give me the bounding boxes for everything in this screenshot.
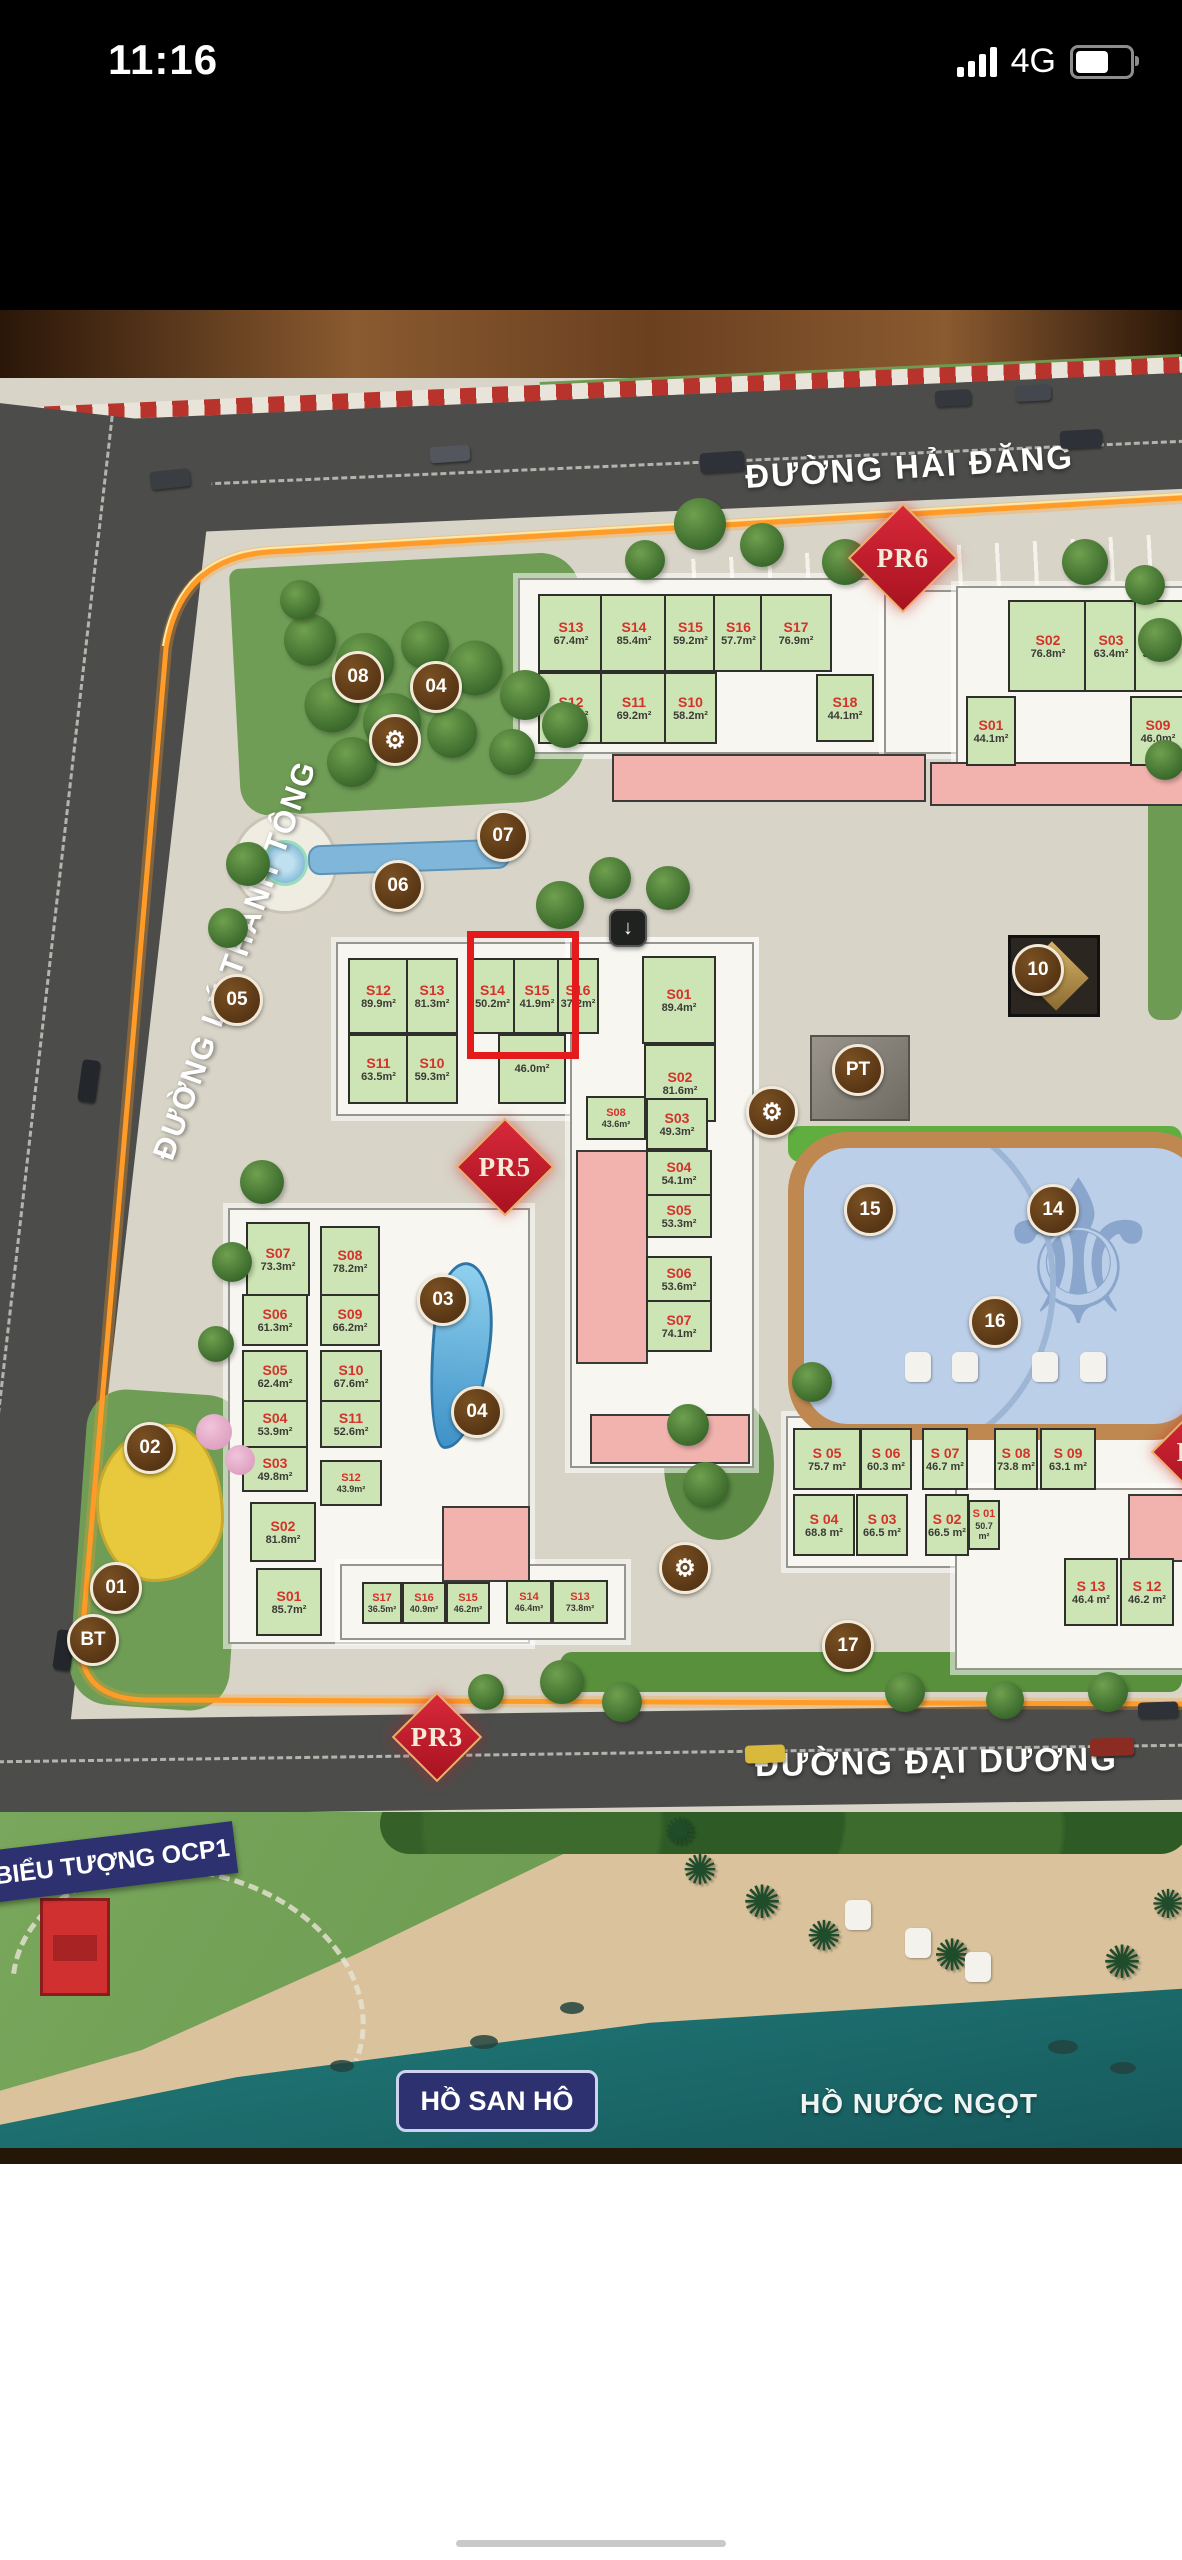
unit-S15: S1559.2m² [664,594,717,672]
lounge-chair [965,1952,991,1982]
tree [1062,539,1108,585]
unit-S16: S1657.7m² [713,594,764,672]
unit-S05: S 0575.7 m² [793,1428,861,1490]
unit-label: S 04 [810,1511,839,1527]
car [429,445,470,464]
unit-S06: S0661.3m² [242,1294,308,1346]
unit-S15: S1546.2m² [446,1582,490,1624]
unit-S12: S1289.9m² [348,958,409,1034]
unit-S14: S1485.4m² [600,594,668,672]
palm-tree: ✺ [1103,1935,1142,1989]
battery-icon [1070,45,1134,79]
amenity-marker-03: 03 [417,1274,469,1326]
unit-area: 62.4m² [258,1378,293,1391]
lounge-chair [1080,1352,1106,1382]
unit-label: S06 [263,1306,288,1322]
master-plan-map: ⚜ S1367.4m²S1485.4m²S1559.2m²S1657.7m²S1… [0,0,1182,2165]
unit-S01: S0189.4m² [642,956,716,1044]
unit-area: 52.6m² [334,1426,369,1439]
tree [683,1462,729,1508]
unit-area: 73.8m² [566,1603,595,1613]
unit-label: S07 [266,1245,291,1261]
car [1090,1737,1135,1757]
unit-S03: S 0366.5 m² [856,1494,908,1556]
unit-S04: S0453.9m² [242,1400,308,1448]
unit-label: S14 [519,1591,539,1604]
unit-label: S11 [622,694,646,710]
unit-area: 63.5m² [361,1071,396,1084]
ocp1-red-structure [40,1898,110,1996]
tree [198,1326,234,1362]
unit-area: 46.2 m² [1128,1594,1166,1607]
unit-area: 73.3m² [261,1261,296,1274]
amenity-marker-15: 15 [844,1184,896,1236]
gear-icon: ⚙ [659,1542,711,1594]
unit-label: S13 [559,619,584,635]
unit-label: S05 [263,1362,288,1378]
unit-S13: S1381.3m² [406,958,458,1034]
amenity-marker-04: 04 [451,1386,503,1438]
unit-S07: S0774.1m² [646,1300,712,1352]
palm-tree: ✺ [806,1912,841,1961]
unit-area: 53.9m² [258,1426,293,1439]
unit-area: 67.6m² [334,1378,369,1391]
unit-label: S12 [366,982,391,998]
unit-area: 75.7 m² [808,1461,846,1474]
unit-label: S10 [339,1362,364,1378]
unit-label: S09 [1146,717,1171,733]
unit-area: 59.2m² [673,635,708,648]
unit-area: 61.3m² [258,1322,293,1335]
unit-S09: S 0963.1 m² [1040,1428,1096,1490]
unit-S04: S0454.1m² [646,1150,712,1196]
highlighted-unit-box [467,931,579,1059]
unit-S10: S1067.6m² [320,1350,382,1402]
tree [1088,1672,1128,1712]
unit-S03: S0349.3m² [646,1098,708,1150]
unit-area: 85.7m² [272,1604,307,1617]
tree [740,523,784,567]
unit-area: 44.1m² [828,710,863,723]
tree [212,1242,252,1282]
tree [489,729,535,775]
tree [208,908,248,948]
unit-label: S15 [678,619,703,635]
amenity-marker-10: 10 [1012,944,1064,996]
amenity-marker-04: 04 [410,661,462,713]
main-pool: ⚜ [788,1132,1182,1440]
unit-label: S11 [339,1410,363,1426]
unit-area: 59.3m² [415,1071,450,1084]
blossom-tree [196,1414,232,1450]
tree [500,670,550,720]
unit-label: S15 [458,1592,478,1605]
unit-label: S13 [420,982,445,998]
tree [1138,618,1182,662]
unit-label: S 08 [1002,1445,1031,1461]
unit-S11: S1152.6m² [320,1400,382,1448]
street-label-dai-duong: ĐƯỜNG ĐẠI DƯƠNG [755,1740,1118,1784]
unit-area: 66.2m² [333,1322,368,1335]
unit-S07: S0773.3m² [246,1222,310,1296]
unit-S07: S 0746.7 m² [922,1428,968,1490]
photo-bottom-edge [0,2148,1182,2164]
unit-label: S06 [667,1265,692,1281]
unit-label: S 12 [1133,1578,1162,1594]
status-right-cluster: 4G [957,42,1134,81]
unit-area: 67.4m² [554,635,589,648]
unit-area: 46.4m² [515,1603,544,1613]
amenity-marker-02: 02 [124,1422,176,1474]
unit-S13: S1367.4m² [538,594,604,672]
unit-area: 53.6m² [662,1281,697,1294]
lake-label-nuoc-ngot: HỒ NƯỚC NGỌT [800,2088,1038,2120]
unit-S01: S 0150.7 m² [968,1500,1000,1550]
unit-S06: S0653.6m² [646,1256,712,1302]
unit-label: S16 [414,1592,434,1605]
unit-label: S12 [341,1472,361,1485]
gear-icon: ⚙ [746,1086,798,1138]
rock [470,2035,498,2049]
home-indicator [456,2540,726,2547]
unit-S18: S1844.1m² [816,674,874,742]
building-bottom-right-commercial-block [1128,1494,1182,1562]
unit-S11: S1163.5m² [348,1034,409,1104]
unit-S03: S0363.4m² [1084,600,1138,692]
tree [284,614,336,666]
network-type-label: 4G [1011,42,1056,81]
lounge-chair [845,1900,871,1930]
unit-area: 89.9m² [361,998,396,1011]
entrance-arrow-icon: ↓ [609,909,647,947]
unit-area: 63.4m² [1094,648,1129,661]
tree [674,498,726,550]
unit-label: S07 [667,1312,692,1328]
phone-screenshot: ⚜ S1367.4m²S1485.4m²S1559.2m²S1657.7m²S1… [0,0,1182,2560]
unit-S10: S1058.2m² [664,672,717,744]
unit-S01: S0144.1m² [966,696,1016,766]
unit-S08: S0843.6m² [586,1096,646,1140]
amenity-marker-16: 16 [969,1296,1021,1348]
car [935,389,972,407]
unit-S02: S0281.8m² [250,1502,316,1562]
unit-label: S05 [667,1202,692,1218]
unit-label: S17 [784,619,809,635]
unit-area: 81.8m² [266,1534,301,1547]
amenity-marker-01: 01 [90,1562,142,1614]
car [1138,1701,1179,1718]
tree [885,1672,925,1712]
unit-label: S11 [366,1055,390,1071]
unit-S05: S0562.4m² [242,1350,308,1402]
lounge-chair [952,1352,978,1382]
unit-S04: S 0468.8 m² [793,1494,855,1556]
unit-label: S01 [979,717,1004,733]
unit-S12: S 1246.2 m² [1120,1558,1174,1626]
blossom-tree [225,1445,255,1475]
gear-icon: ⚙ [369,714,421,766]
unit-area: 46.4 m² [1072,1594,1110,1607]
lounge-chair [905,1928,931,1958]
unit-area: 66.5 m² [928,1527,966,1540]
amenity-marker-PT: PT [832,1044,884,1096]
unit-label: S08 [606,1107,626,1120]
unit-area: 66.5 m² [863,1527,901,1540]
unit-area: 78.2m² [333,1263,368,1276]
unit-label: S10 [420,1055,445,1071]
unit-label: S 09 [1054,1445,1083,1461]
unit-area: 46.0m² [515,1063,550,1076]
unit-label: S13 [570,1591,590,1604]
tree [226,842,270,886]
unit-area: 74.1m² [662,1328,697,1341]
amenity-marker-17: 17 [822,1620,874,1672]
unit-label: S02 [1036,632,1061,648]
rock [560,2002,584,2014]
unit-label: S14 [622,619,647,635]
building-bottom-left-commercial-block [442,1506,530,1582]
palm-tree: ✺ [664,1812,696,1855]
unit-label: S 07 [931,1445,960,1461]
beach-treeline [380,1812,1182,1854]
tree [280,580,320,620]
unit-area: 43.6m² [602,1119,631,1129]
unit-area: 50.7 m² [970,1521,998,1542]
unit-label: S01 [667,986,692,1002]
beach-zone: BIỂU TƯỢNG OCP1 HỒ SAN HÔ HỒ NƯỚC NGỌT ✺… [0,1812,1182,2152]
unit-area: 43.9m² [337,1484,366,1494]
lounge-chair [905,1352,931,1382]
car [699,450,744,473]
unit-S12: S1243.9m² [320,1460,382,1506]
unit-label: S16 [726,619,751,635]
amenity-marker-07: 07 [477,810,529,862]
palm-tree: ✺ [743,1875,782,1929]
tree [468,1674,504,1710]
rock [330,2060,354,2072]
unit-area: 76.8m² [1031,648,1066,661]
unit-label: S18 [833,694,858,710]
tree [536,881,584,929]
unit-S10: S1059.3m² [406,1034,458,1104]
building-top-slab [884,590,964,754]
unit-S11: S1169.2m² [600,672,668,744]
unit-label: S10 [678,694,703,710]
amenity-marker-14: 14 [1027,1184,1079,1236]
unit-label: S 13 [1077,1578,1106,1594]
unit-label: S08 [338,1247,363,1263]
tree [240,1160,284,1204]
unit-area: 69.2m² [617,710,652,723]
lounge-chair [1032,1352,1058,1382]
amenity-marker-05: 05 [211,974,263,1026]
palm-tree: ✺ [1151,1882,1182,1928]
unit-area: 54.1m² [662,1175,697,1188]
unit-area: 81.3m² [415,998,450,1011]
unit-S01: S0185.7m² [256,1568,322,1636]
bottom-white-area [0,2164,1182,2560]
unit-area: 36.5m² [368,1604,397,1614]
amenity-marker-BT: BT [67,1614,119,1666]
lake-label-san-ho: HỒ SAN HÔ [396,2070,598,2132]
unit-area: 76.9m² [779,635,814,648]
unit-S08: S 0873.8 m² [994,1428,1038,1490]
unit-S16: S1640.9m² [402,1582,446,1624]
unit-S14: S1446.4m² [506,1580,552,1624]
unit-S06: S 0660.3 m² [860,1428,912,1490]
unit-area: 85.4m² [617,635,652,648]
car [1015,384,1052,402]
tree [427,708,477,758]
unit-area: 46.2m² [454,1604,483,1614]
tree [542,702,588,748]
unit-area: 60.3 m² [867,1461,905,1474]
pool-arc-pattern [788,1132,1056,1440]
unit-S08: S0878.2m² [320,1226,380,1296]
unit-area: 46.7 m² [926,1461,964,1474]
tree [602,1682,642,1722]
unit-S13: S 1346.4 m² [1064,1558,1118,1626]
tree [625,540,665,580]
unit-S13: S1373.8m² [552,1580,608,1624]
unit-label: S04 [667,1159,692,1175]
unit-area: 40.9m² [410,1604,439,1614]
building-middle-commercial-block [576,1150,648,1364]
unit-S02: S 0266.5 m² [925,1494,969,1556]
rock [1048,2040,1078,2054]
unit-S17: S1736.5m² [362,1582,402,1624]
rock [1110,2062,1136,2074]
tree [1145,740,1182,780]
unit-area: 49.8m² [258,1471,293,1484]
unit-area: 53.3m² [662,1218,697,1231]
tree [589,857,631,899]
unit-label: S 02 [933,1511,962,1527]
tree [646,866,690,910]
unit-area: 81.6m² [663,1085,698,1098]
unit-area: 58.2m² [673,710,708,723]
unit-label: S03 [1099,632,1124,648]
unit-area: 73.8 m² [997,1461,1035,1474]
tree [986,1681,1024,1719]
unit-area: 49.3m² [660,1126,695,1139]
unit-label: S 06 [872,1445,901,1461]
unit-area: 44.1m² [974,733,1009,746]
status-time: 11:16 [108,36,218,84]
amenity-marker-08: 08 [332,651,384,703]
car [745,1744,786,1763]
unit-S02: S0276.8m² [1008,600,1088,692]
unit-label: S 03 [868,1511,897,1527]
amenity-marker-06: 06 [372,860,424,912]
status-bar: 11:16 4G [0,0,1182,310]
tree [540,1660,584,1704]
unit-label: S02 [271,1518,296,1534]
signal-bars-icon [957,47,997,77]
unit-area: 63.1 m² [1049,1461,1087,1474]
tree [667,1404,709,1446]
building-top-commercial-block [930,762,1182,806]
unit-area: 89.4m² [662,1002,697,1015]
building-top-commercial-block [612,754,926,802]
unit-area: 57.7m² [721,635,756,648]
unit-label: S09 [338,1306,363,1322]
unit-label: S04 [263,1410,288,1426]
tree [792,1362,832,1402]
unit-label: S 01 [973,1508,996,1521]
car [1060,429,1103,449]
unit-label: S03 [263,1455,288,1471]
unit-label: S03 [665,1110,690,1126]
unit-S17: S1776.9m² [760,594,832,672]
tree [1125,565,1165,605]
unit-label: S17 [372,1592,392,1605]
unit-S09: S0966.2m² [320,1294,380,1346]
unit-label: S02 [668,1069,693,1085]
unit-label: S 05 [813,1445,842,1461]
unit-area: 68.8 m² [805,1527,843,1540]
unit-S05: S0553.3m² [646,1194,712,1238]
unit-label: S01 [277,1588,302,1604]
